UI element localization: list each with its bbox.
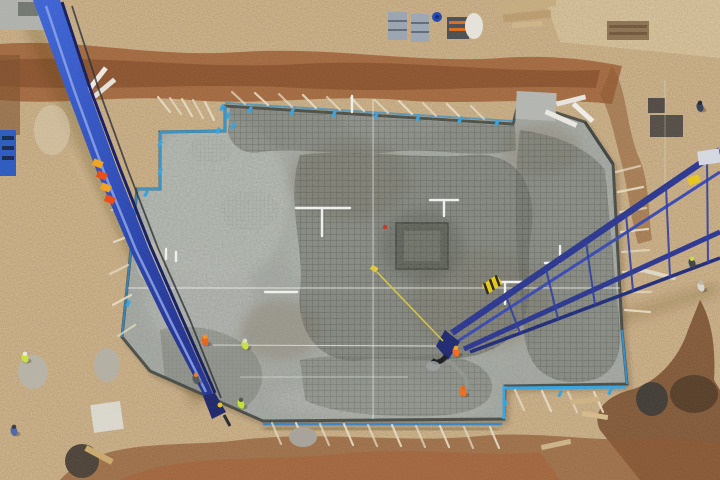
aerial-construction-photo	[0, 0, 720, 480]
photo-grain	[0, 0, 720, 480]
scene-canvas	[0, 0, 720, 480]
